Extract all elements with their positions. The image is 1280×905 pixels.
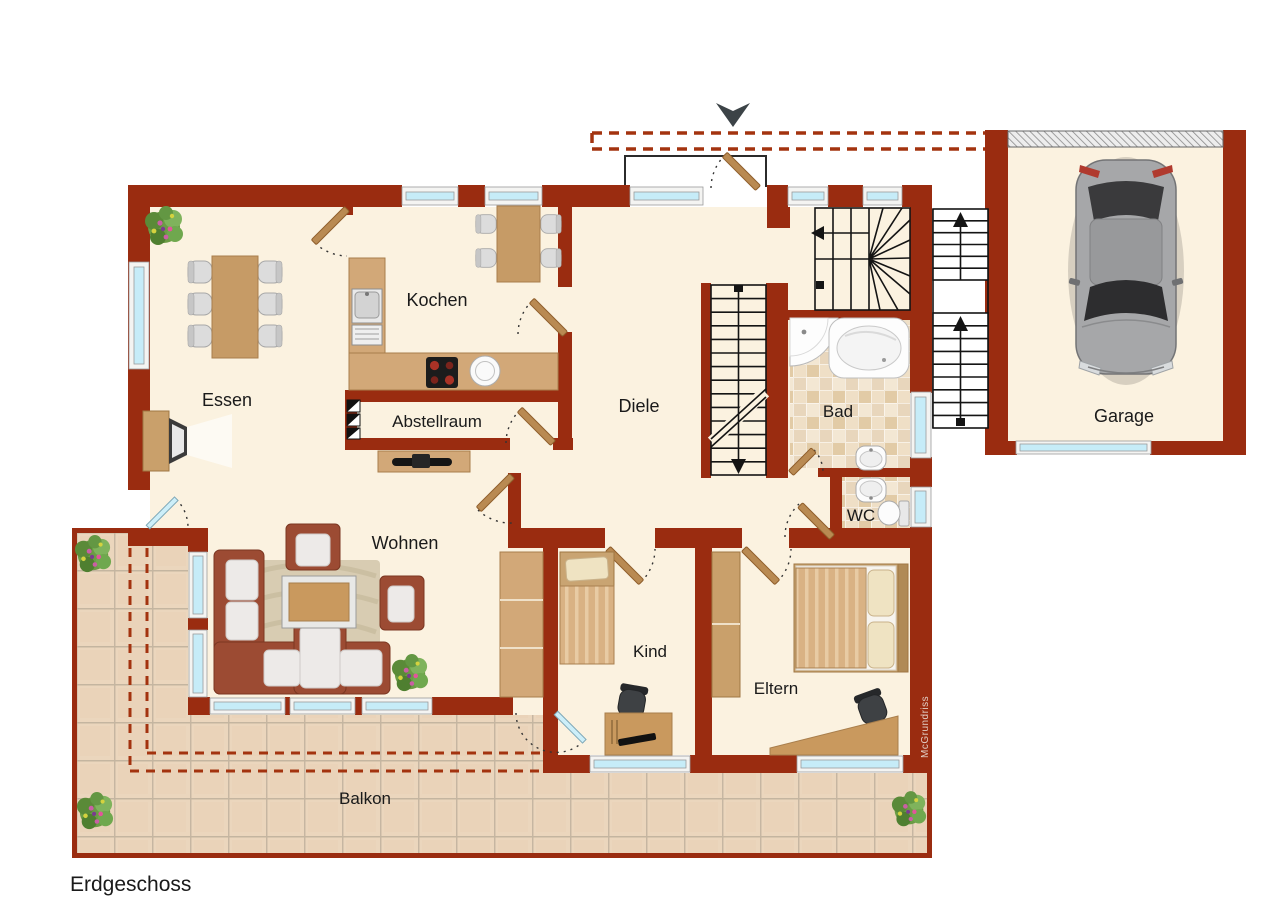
window-left-essen	[129, 262, 149, 369]
washbasin-bad	[856, 446, 886, 470]
room-label-eltern: Eltern	[754, 679, 798, 698]
window-top-1	[402, 187, 458, 205]
bathtub	[829, 318, 909, 378]
washbasin-wc	[856, 478, 886, 502]
window-top-3	[630, 187, 703, 205]
sideboard-stereo	[378, 451, 470, 472]
dining-table	[212, 256, 258, 358]
entrance-arrow-icon	[716, 103, 750, 127]
room-label-wohnen: Wohnen	[372, 533, 439, 553]
entrance-canopy-dashed-outline	[592, 133, 986, 149]
window-top-4	[788, 187, 828, 205]
room-label-kind: Kind	[633, 642, 667, 661]
kitchen-table	[497, 206, 540, 282]
watermark-label: McGrundriss	[920, 696, 931, 758]
wohnen-sideboard	[500, 552, 543, 697]
armchair-right	[380, 576, 424, 630]
shelf-symbols	[347, 400, 360, 439]
window-bad	[911, 392, 931, 458]
window-top-5	[863, 187, 902, 205]
window-wohnen-left-2	[189, 630, 207, 697]
stair-exterior	[933, 209, 988, 428]
coffee-table	[282, 576, 356, 628]
room-label-essen: Essen	[202, 390, 252, 410]
toilet	[878, 501, 909, 526]
garage-door	[1008, 131, 1223, 147]
floorplan-canvas: Essen Kochen Abstellraum Diele Bad WC Wo…	[0, 0, 1280, 905]
room-label-diele: Diele	[618, 396, 659, 416]
floor-title: Erdgeschoss	[70, 873, 191, 896]
stove-icon	[426, 357, 458, 388]
room-label-abstellraum: Abstellraum	[392, 412, 482, 431]
room-label-bad: Bad	[823, 402, 853, 421]
room-label-balkon: Balkon	[339, 789, 391, 808]
window-wohnen-bottom-3	[362, 698, 432, 714]
window-kind	[590, 756, 690, 772]
window-garage	[1016, 441, 1151, 454]
car-top-view	[1068, 157, 1184, 385]
bed-double	[794, 564, 908, 672]
window-wohnen-left-1	[189, 552, 207, 618]
stair-interior-straight	[711, 285, 766, 475]
kitchen-bowl	[470, 356, 500, 386]
kitchen-sink	[352, 289, 382, 345]
room-label-wc: WC	[847, 506, 875, 525]
room-label-kochen: Kochen	[406, 290, 467, 310]
window-wohnen-bottom-1	[210, 698, 285, 714]
window-wohnen-bottom-2	[290, 698, 355, 714]
bed-single	[560, 552, 614, 664]
floorplan-page: Essen Kochen Abstellraum Diele Bad WC Wo…	[0, 0, 1280, 905]
desk-kind	[605, 713, 672, 755]
door-entrance	[722, 152, 760, 190]
stair-winder	[811, 208, 910, 310]
room-label-garage: Garage	[1094, 406, 1154, 426]
window-top-2	[485, 187, 542, 205]
window-wc	[911, 487, 931, 527]
dining-group	[188, 256, 282, 358]
armchair-top	[286, 524, 340, 570]
window-eltern	[797, 756, 903, 772]
